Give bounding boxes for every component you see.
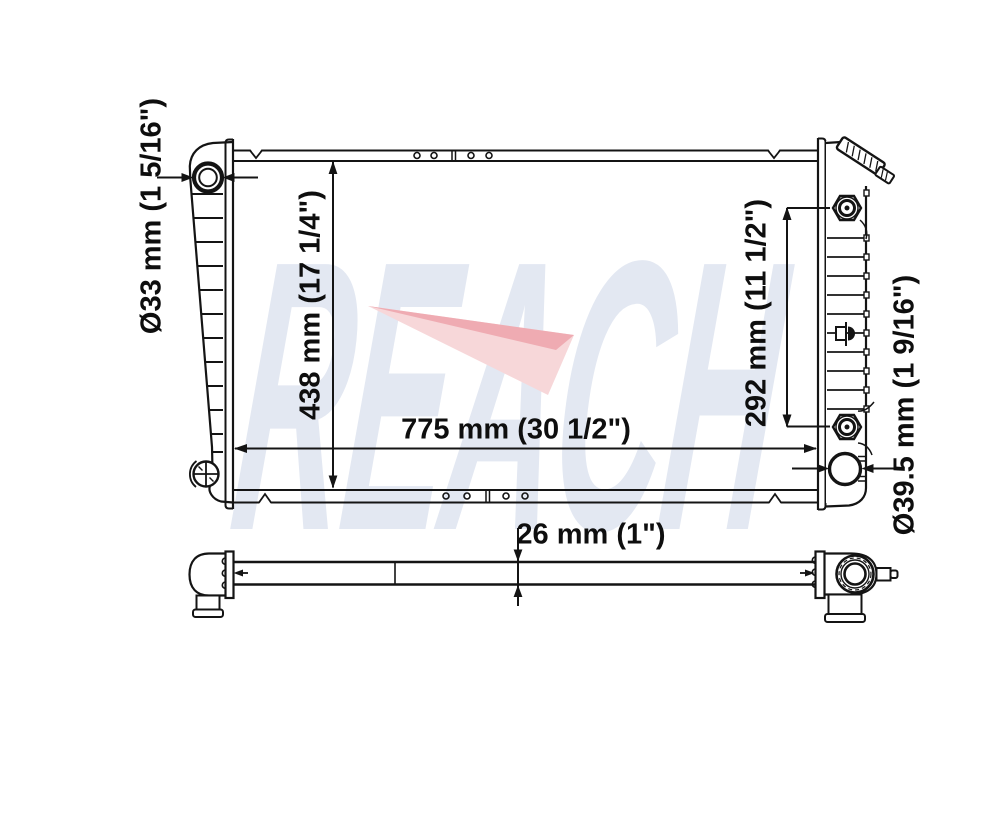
dim-core-width-label: 775 mm (30 1/2") bbox=[401, 414, 631, 447]
dim-core-height bbox=[329, 161, 338, 489]
side-left-tank bbox=[190, 552, 234, 618]
side-view-arrows bbox=[234, 570, 815, 577]
dim-core-height-label: 438 mm (17 1/4") bbox=[295, 190, 328, 420]
front-view bbox=[157, 136, 899, 510]
dim-fitting-span bbox=[783, 207, 831, 428]
dim-core-thickness-label: 26 mm (1") bbox=[516, 519, 665, 552]
radiator-diagram-page: REACH bbox=[0, 0, 1002, 831]
side-outlet-ring bbox=[837, 556, 874, 593]
drain-cap bbox=[190, 461, 219, 487]
dim-fitting-span-label: 292 mm (11 1/2") bbox=[741, 199, 774, 427]
dim-outlet-diameter-label: Ø39.5 mm (1 9/16") bbox=[889, 275, 922, 535]
inlet-port bbox=[194, 164, 222, 192]
right-tank bbox=[826, 136, 898, 506]
left-tank bbox=[190, 142, 233, 503]
dim-inlet-diameter-label: Ø33 mm (1 5/16") bbox=[136, 98, 169, 334]
side-right-tank bbox=[812, 552, 897, 623]
